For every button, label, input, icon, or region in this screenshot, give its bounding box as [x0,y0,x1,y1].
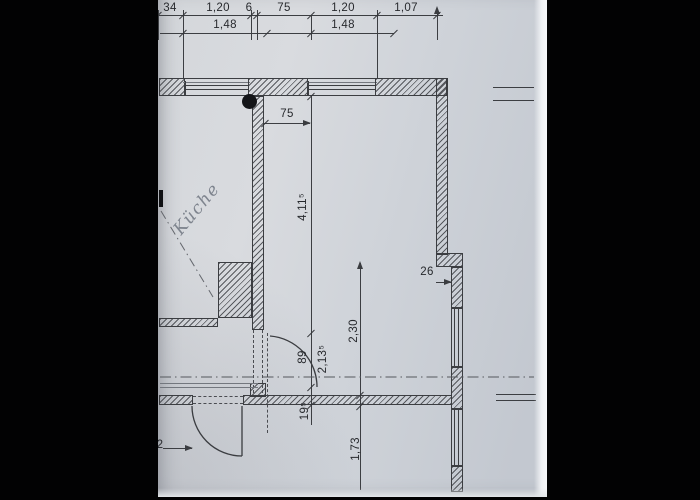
dim-label: 1,20 [331,2,355,14]
letterbox-right [547,0,700,500]
ink-dot-marker [242,94,257,109]
door-swing-arc [192,406,242,456]
dim-label: 34 [163,2,176,14]
dim-label: 6 [246,2,253,14]
dim-label: 1,48 [213,19,237,31]
door-swing-arc [270,336,317,387]
dim-label: 2,30 [348,319,360,343]
dim-label: 1,48 [331,19,355,31]
screenshot-root: 34 1,20 6 75 1,20 1,07 1,48 1,48 [0,0,700,500]
dim-label: 1,20 [206,2,230,14]
dim-label: 89 [297,350,309,363]
dim-label: 2,13⁵ [317,345,329,374]
dim-label: 26 [420,266,433,278]
dim-label: 4,11⁵ [297,193,309,221]
dim-label: 75 [280,108,293,120]
dim-label: 1,73 [350,437,362,461]
dim-label: 1,07 [394,2,418,14]
dim-label: 75 [277,2,290,14]
letterbox-left [0,0,158,500]
dim-label: 19⁵ [299,402,311,420]
